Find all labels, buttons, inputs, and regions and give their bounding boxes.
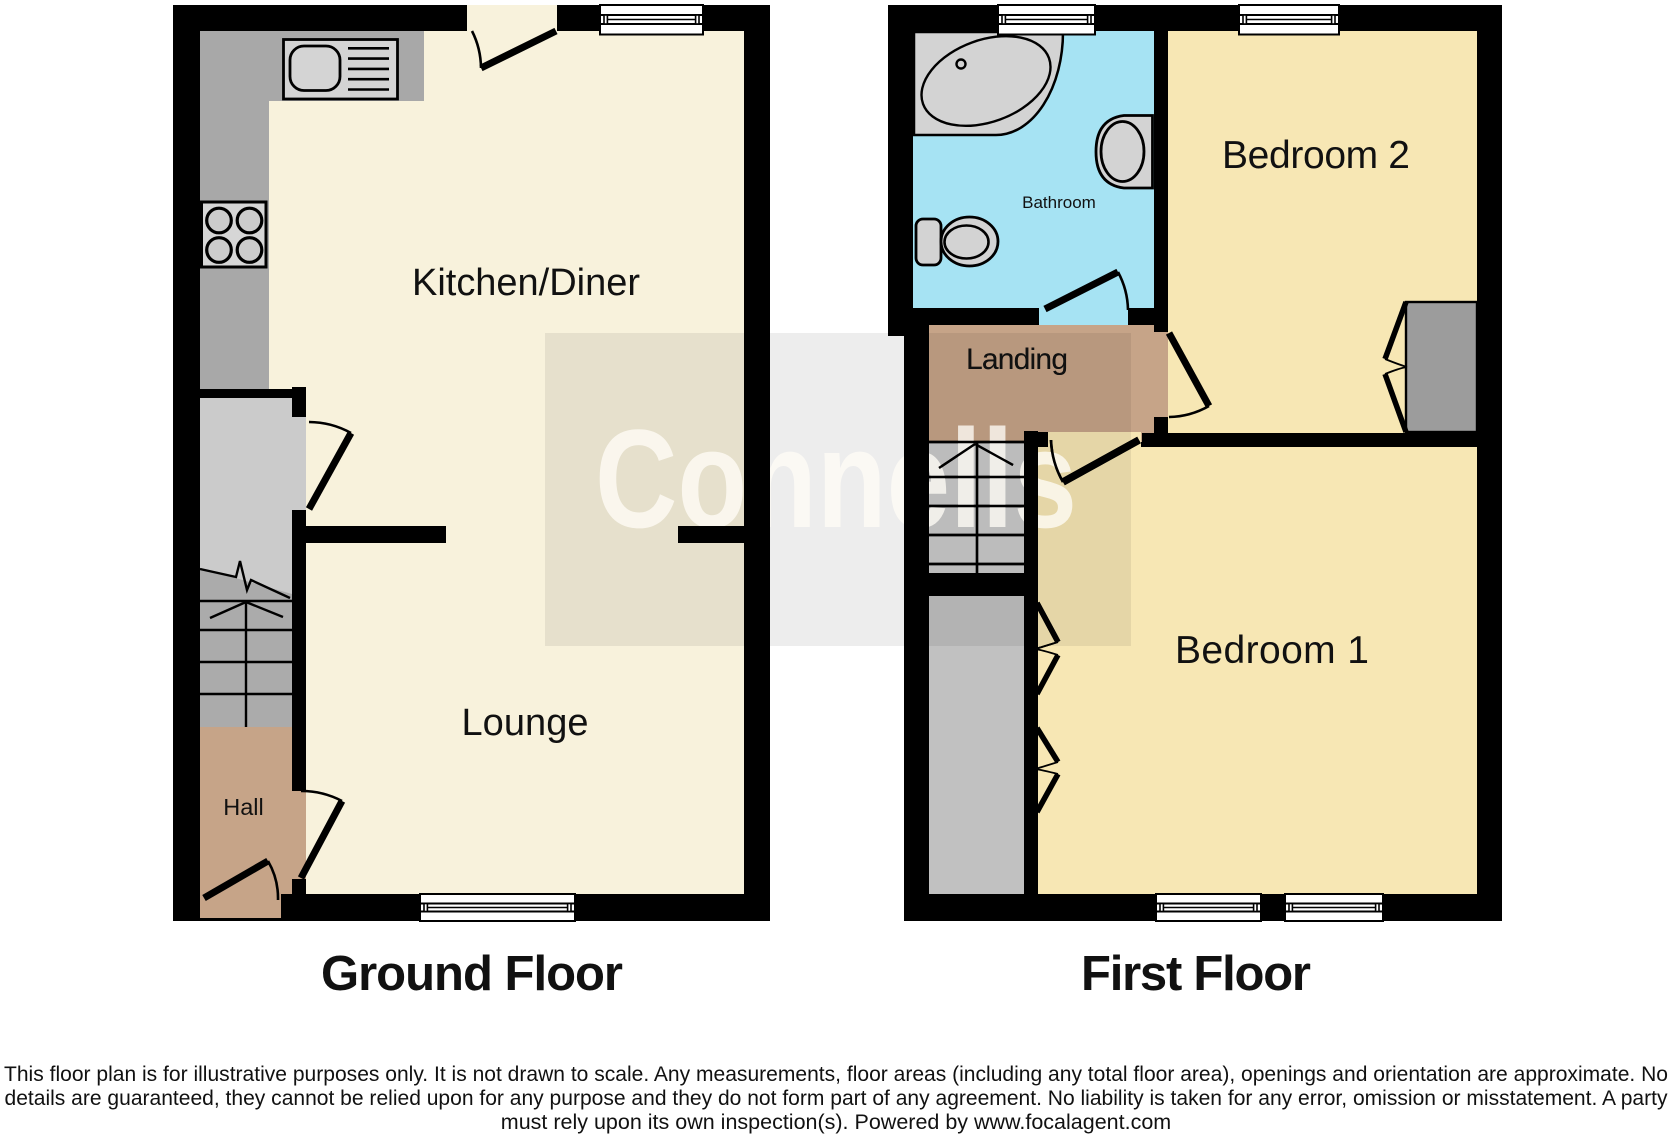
svg-text:Landing: Landing [966,343,1068,376]
svg-text:Bathroom: Bathroom [1022,193,1096,212]
svg-text:Ground Floor: Ground Floor [321,947,623,1001]
svg-text:Bedroom 1: Bedroom 1 [1175,629,1369,672]
svg-text:Hall: Hall [223,794,263,820]
svg-text:Kitchen/Diner: Kitchen/Diner [412,262,640,304]
svg-text:Connells: Connells [595,400,1077,557]
svg-text:details are guaranteed, they c: details are guaranteed, they cannot be r… [5,1086,1668,1110]
svg-text:This floor plan is for illustr: This floor plan is for illustrative purp… [4,1062,1668,1086]
svg-text:Lounge: Lounge [462,702,589,744]
svg-text:must rely upon its own inspect: must rely upon its own inspection(s). Po… [501,1110,1171,1134]
svg-text:First Floor: First Floor [1081,947,1311,1001]
svg-text:Bedroom 2: Bedroom 2 [1222,134,1410,177]
